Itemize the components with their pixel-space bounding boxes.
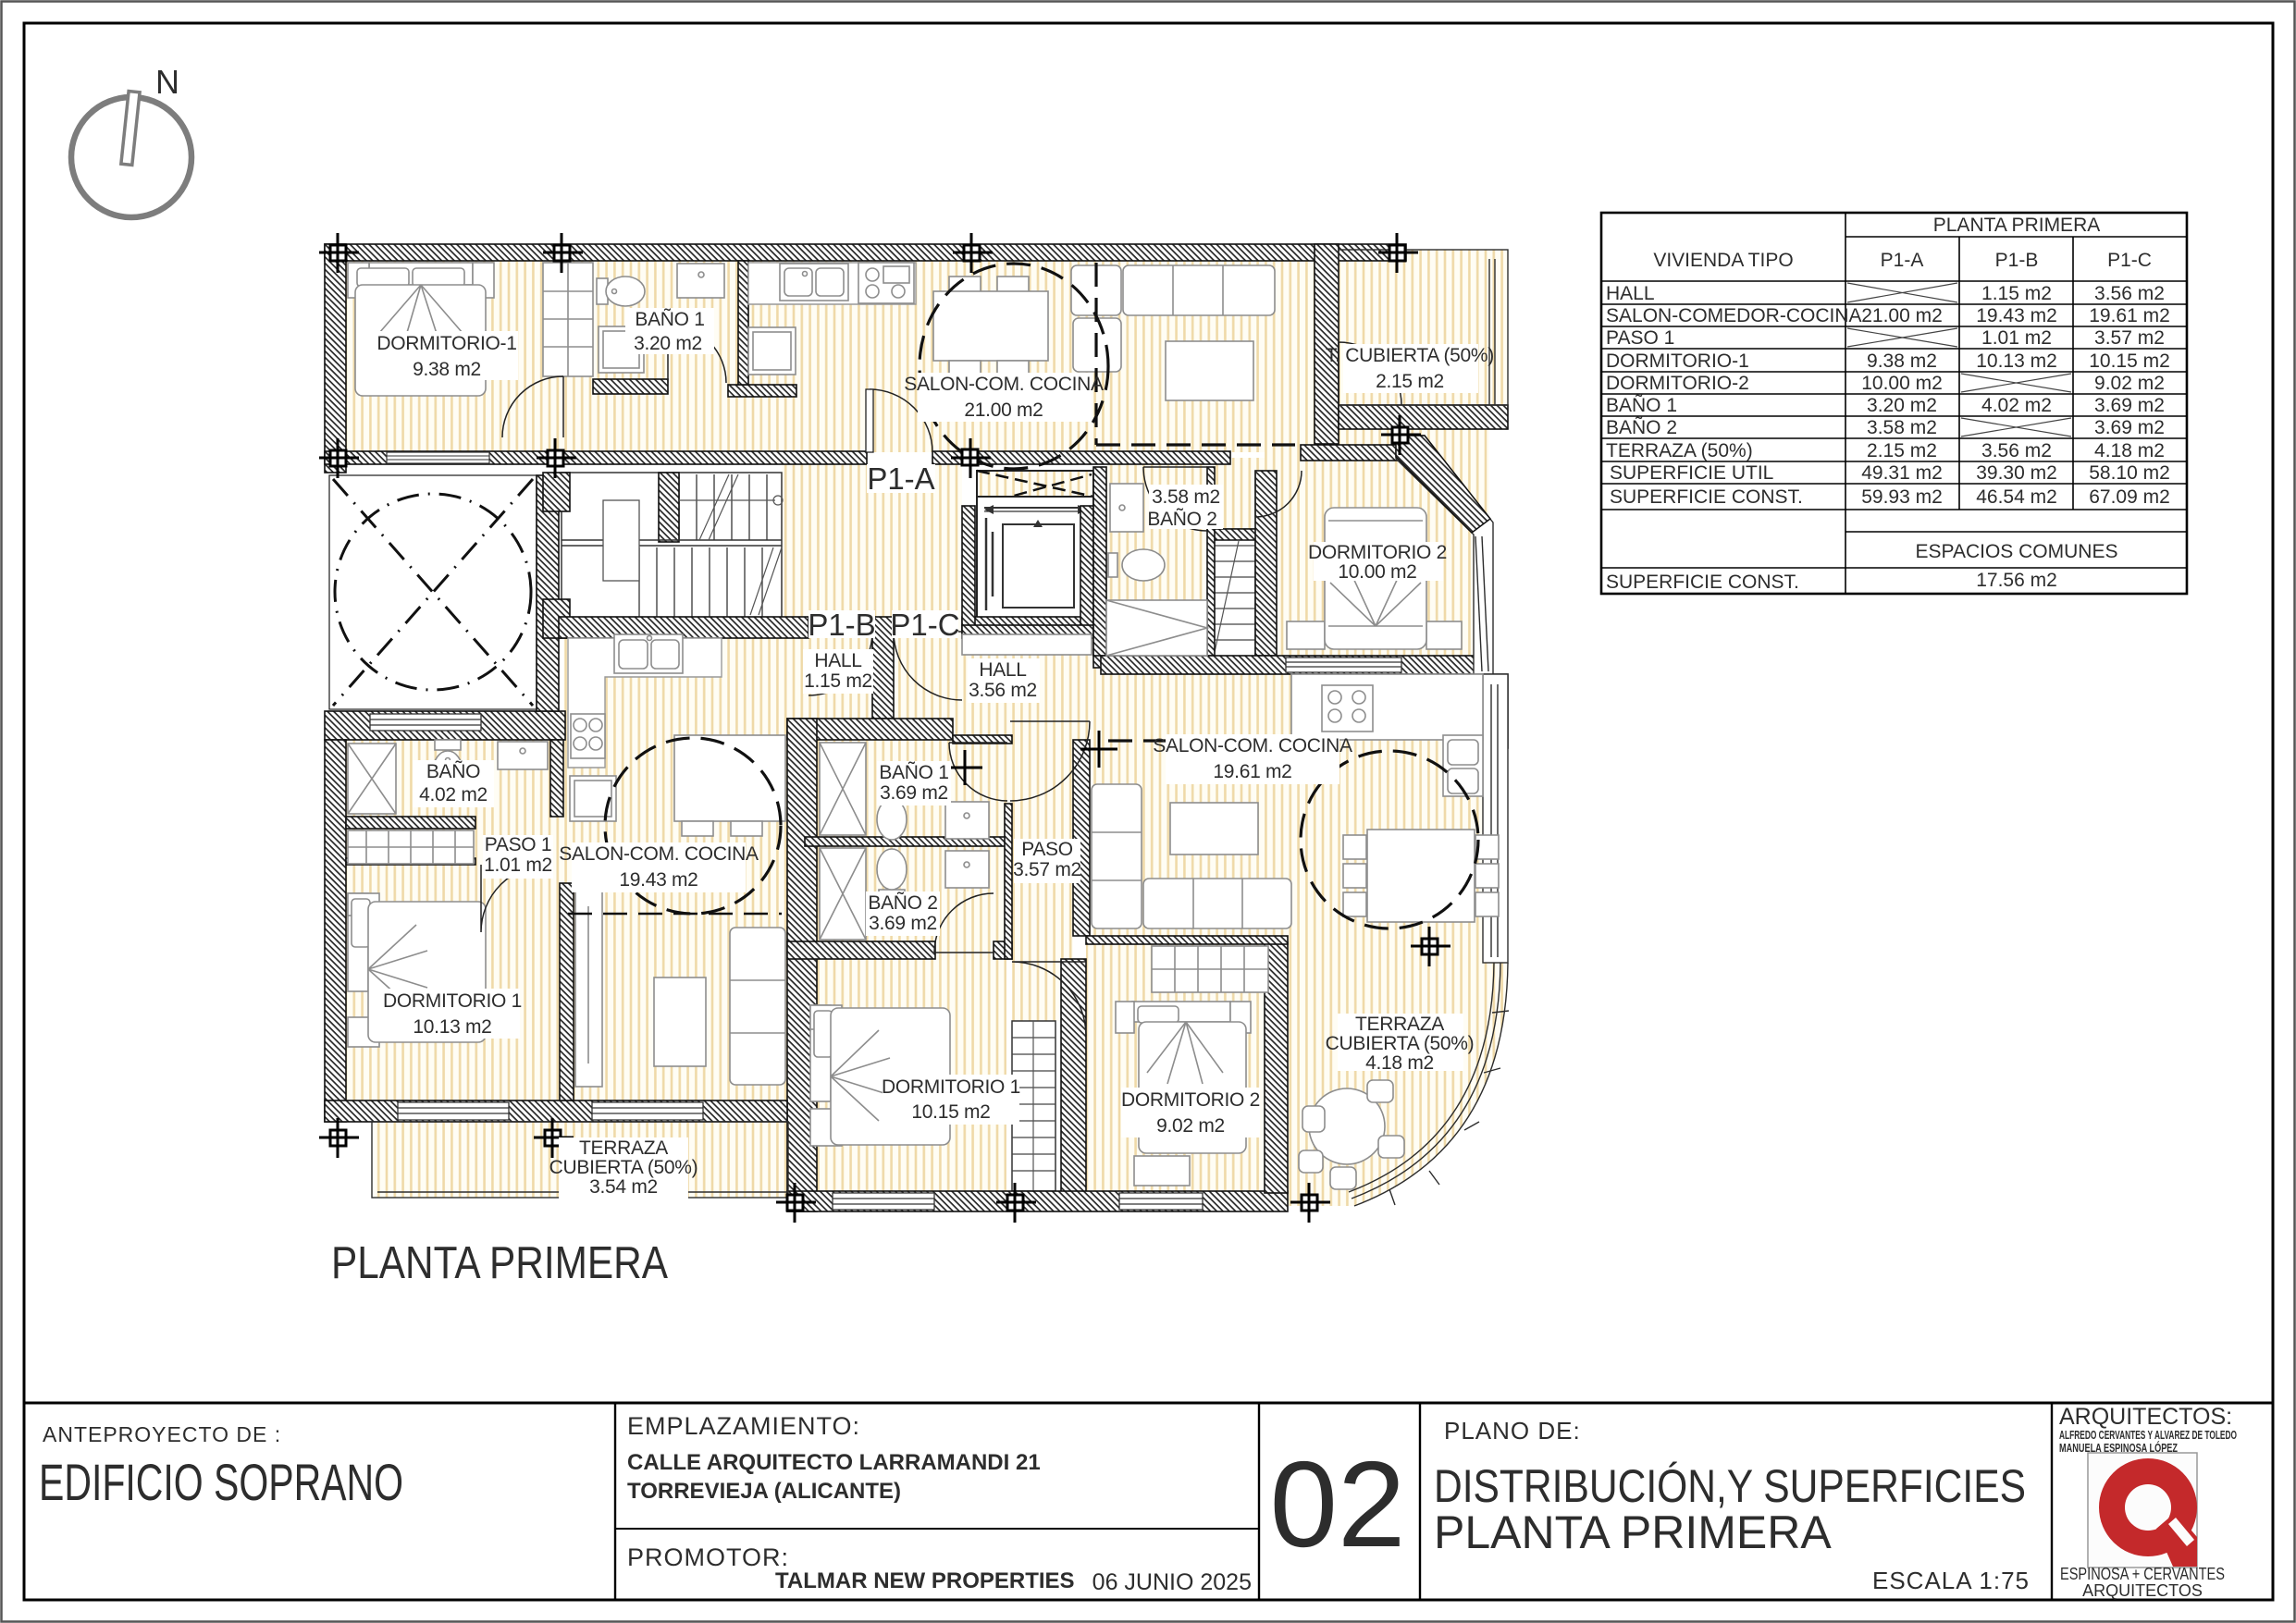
svg-text:ANTEPROYECTO DE :: ANTEPROYECTO DE : [43,1422,281,1446]
svg-text:P1-C: P1-C [2107,250,2152,271]
svg-text:10.00 m2: 10.00 m2 [1338,561,1416,583]
svg-text:19.43 m2: 19.43 m2 [1976,305,2057,326]
svg-text:BAÑO 2: BAÑO 2 [1147,508,1216,530]
svg-text:3.56 m2: 3.56 m2 [1981,440,2052,461]
svg-text:DISTRIBUCIÓN,Y SUPERFICIES: DISTRIBUCIÓN,Y SUPERFICIES [1434,1460,2026,1512]
svg-text:DORMITORIO 1: DORMITORIO 1 [882,1076,1020,1098]
svg-text:TERRAZA (50%): TERRAZA (50%) [1606,440,1753,461]
svg-text:19.61 m2: 19.61 m2 [1213,761,1291,782]
svg-text:1.01 m2: 1.01 m2 [1981,327,2052,349]
svg-text:BAÑO: BAÑO [426,760,480,782]
svg-text:EMPLAZAMIENTO:: EMPLAZAMIENTO: [627,1412,860,1440]
svg-text:3.56 m2: 3.56 m2 [969,680,1037,701]
svg-text:4.18 m2: 4.18 m2 [2094,440,2165,461]
svg-text:TORREVIEJA (ALICANTE): TORREVIEJA (ALICANTE) [627,1479,901,1504]
svg-text:4.02 m2: 4.02 m2 [1981,395,2052,416]
svg-text:3.69 m2: 3.69 m2 [880,782,948,804]
svg-text:4.18 m2: 4.18 m2 [1365,1052,1434,1074]
svg-text:DORMITORIO-1: DORMITORIO-1 [376,333,516,354]
svg-text:21.00 m2: 21.00 m2 [1861,305,1943,326]
svg-text:SUPERFICIE CONST.: SUPERFICIE CONST. [1610,486,1803,508]
svg-text:3.54 m2: 3.54 m2 [589,1176,658,1198]
svg-text:ALFREDO CERVANTES Y ALVAREZ DE: ALFREDO CERVANTES Y ALVAREZ DE TOLEDO [2059,1429,2237,1442]
svg-text:17.56 m2: 17.56 m2 [1976,570,2057,591]
svg-text:BAÑO 1: BAÑO 1 [635,308,704,330]
svg-text:3.57 m2: 3.57 m2 [2094,327,2165,349]
svg-text:ARQUITECTOS:: ARQUITECTOS: [2059,1404,2232,1430]
svg-text:VIVIENDA TIPO: VIVIENDA TIPO [1653,250,1793,271]
svg-text:DORMITORIO-2: DORMITORIO-2 [1606,373,1749,394]
svg-text:3.57 m2: 3.57 m2 [1013,859,1081,880]
svg-text:PLANO DE:: PLANO DE: [1444,1417,1581,1445]
svg-text:3.20 m2: 3.20 m2 [634,333,702,354]
svg-text:SALON-COMEDOR-COCINA: SALON-COMEDOR-COCINA [1606,305,1862,326]
svg-text:02: 02 [1270,1436,1406,1572]
svg-text:2.15 m2: 2.15 m2 [1376,371,1444,392]
svg-text:3.69 m2: 3.69 m2 [2094,395,2165,416]
svg-text:9.02 m2: 9.02 m2 [2094,373,2165,394]
svg-text:EDIFICIO SOPRANO: EDIFICIO SOPRANO [39,1453,403,1511]
svg-text:HALL: HALL [1606,283,1655,304]
svg-text:T. CUBIERTA (50%): T. CUBIERTA (50%) [1326,345,1494,366]
svg-text:21.00 m2: 21.00 m2 [964,400,1043,421]
svg-text:06 JUNIO 2025: 06 JUNIO 2025 [1092,1569,1252,1595]
svg-text:P1-C: P1-C [890,608,959,642]
svg-text:2.15 m2: 2.15 m2 [1867,440,1937,461]
svg-text:10.15 m2: 10.15 m2 [911,1101,990,1123]
svg-text:3.69 m2: 3.69 m2 [869,913,937,934]
svg-text:CUBIERTA (50%): CUBIERTA (50%) [1326,1033,1475,1054]
svg-text:4.02 m2: 4.02 m2 [419,784,488,805]
svg-text:SUPERFICIE UTIL: SUPERFICIE UTIL [1610,462,1773,484]
svg-text:46.54 m2: 46.54 m2 [1976,486,2057,508]
svg-text:ESCALA 1:75: ESCALA 1:75 [1872,1567,2030,1594]
svg-text:PLANTA PRIMERA: PLANTA PRIMERA [1933,215,2101,236]
svg-text:SALON-COM. COCINA: SALON-COM. COCINA [559,843,759,865]
svg-text:SUPERFICIE CONST.: SUPERFICIE CONST. [1606,572,1799,593]
svg-text:P1-B: P1-B [1995,250,2039,271]
svg-text:10.15 m2: 10.15 m2 [2089,350,2170,372]
svg-text:9.38 m2: 9.38 m2 [413,359,481,380]
svg-text:3.58 m2: 3.58 m2 [1867,417,1937,438]
svg-text:3.56 m2: 3.56 m2 [2094,283,2165,304]
svg-text:BAÑO 2: BAÑO 2 [868,891,937,914]
svg-text:P1-A: P1-A [867,461,934,496]
svg-text:SALON-COM. COCINA: SALON-COM. COCINA [904,374,1104,395]
svg-text:1.15 m2: 1.15 m2 [1981,283,2052,304]
svg-text:1.01 m2: 1.01 m2 [484,855,552,876]
svg-text:67.09 m2: 67.09 m2 [2089,486,2170,508]
svg-text:CALLE ARQUITECTO LARRAMANDI 21: CALLE ARQUITECTO LARRAMANDI 21 [627,1450,1041,1475]
svg-text:PASO 1: PASO 1 [485,834,552,855]
svg-text:1.15 m2: 1.15 m2 [804,670,872,692]
svg-text:10.00 m2: 10.00 m2 [1861,373,1943,394]
svg-text:DORMITORIO 2: DORMITORIO 2 [1121,1089,1260,1111]
svg-text:P1-A: P1-A [1881,250,1924,271]
svg-text:PLANTA PRIMERA: PLANTA PRIMERA [1434,1506,1832,1558]
svg-text:BAÑO 1: BAÑO 1 [1606,394,1677,416]
svg-text:PROMOTOR:: PROMOTOR: [627,1543,789,1571]
svg-text:PLANTA PRIMERA: PLANTA PRIMERA [331,1238,668,1288]
svg-text:TALMAR NEW PROPERTIES: TALMAR NEW PROPERTIES [775,1568,1075,1593]
svg-text:19.43 m2: 19.43 m2 [619,869,697,891]
svg-text:3.69 m2: 3.69 m2 [2094,417,2165,438]
svg-text:TERRAZA: TERRAZA [579,1137,668,1159]
svg-text:58.10 m2: 58.10 m2 [2089,462,2170,484]
svg-text:P1-B: P1-B [808,608,875,642]
svg-text:9.38 m2: 9.38 m2 [1867,350,1937,372]
svg-text:TERRAZA: TERRAZA [1355,1014,1444,1035]
svg-text:PASO: PASO [1021,839,1073,860]
svg-text:DORMITORIO 2: DORMITORIO 2 [1308,542,1447,563]
svg-text:CUBIERTA (50%): CUBIERTA (50%) [549,1157,698,1178]
svg-text:49.31 m2: 49.31 m2 [1861,462,1943,484]
svg-text:19.61 m2: 19.61 m2 [2089,305,2170,326]
svg-text:ESPINOSA + CERVANTES: ESPINOSA + CERVANTES [2060,1565,2225,1583]
svg-text:59.93 m2: 59.93 m2 [1861,486,1943,508]
svg-text:39.30 m2: 39.30 m2 [1976,462,2057,484]
svg-text:ESPACIOS COMUNES: ESPACIOS COMUNES [1916,541,2118,562]
svg-text:N: N [155,63,179,101]
svg-text:9.02 m2: 9.02 m2 [1156,1115,1225,1137]
svg-text:PASO 1: PASO 1 [1606,327,1674,349]
svg-text:3.58 m2: 3.58 m2 [1152,486,1220,508]
svg-text:SALON-COM. COCINA: SALON-COM. COCINA [1153,735,1352,756]
svg-text:BAÑO 1: BAÑO 1 [879,761,948,783]
svg-text:10.13 m2: 10.13 m2 [1976,350,2057,372]
svg-text:DORMITORIO-1: DORMITORIO-1 [1606,350,1749,372]
svg-text:ARQUITECTOS: ARQUITECTOS [2082,1581,2203,1600]
svg-text:HALL: HALL [814,650,861,671]
svg-text:HALL: HALL [979,659,1026,681]
svg-text:BAÑO 2: BAÑO 2 [1606,416,1677,438]
svg-text:DORMITORIO 1: DORMITORIO 1 [383,990,522,1012]
svg-text:10.13 m2: 10.13 m2 [413,1016,491,1038]
svg-text:3.20 m2: 3.20 m2 [1867,395,1937,416]
